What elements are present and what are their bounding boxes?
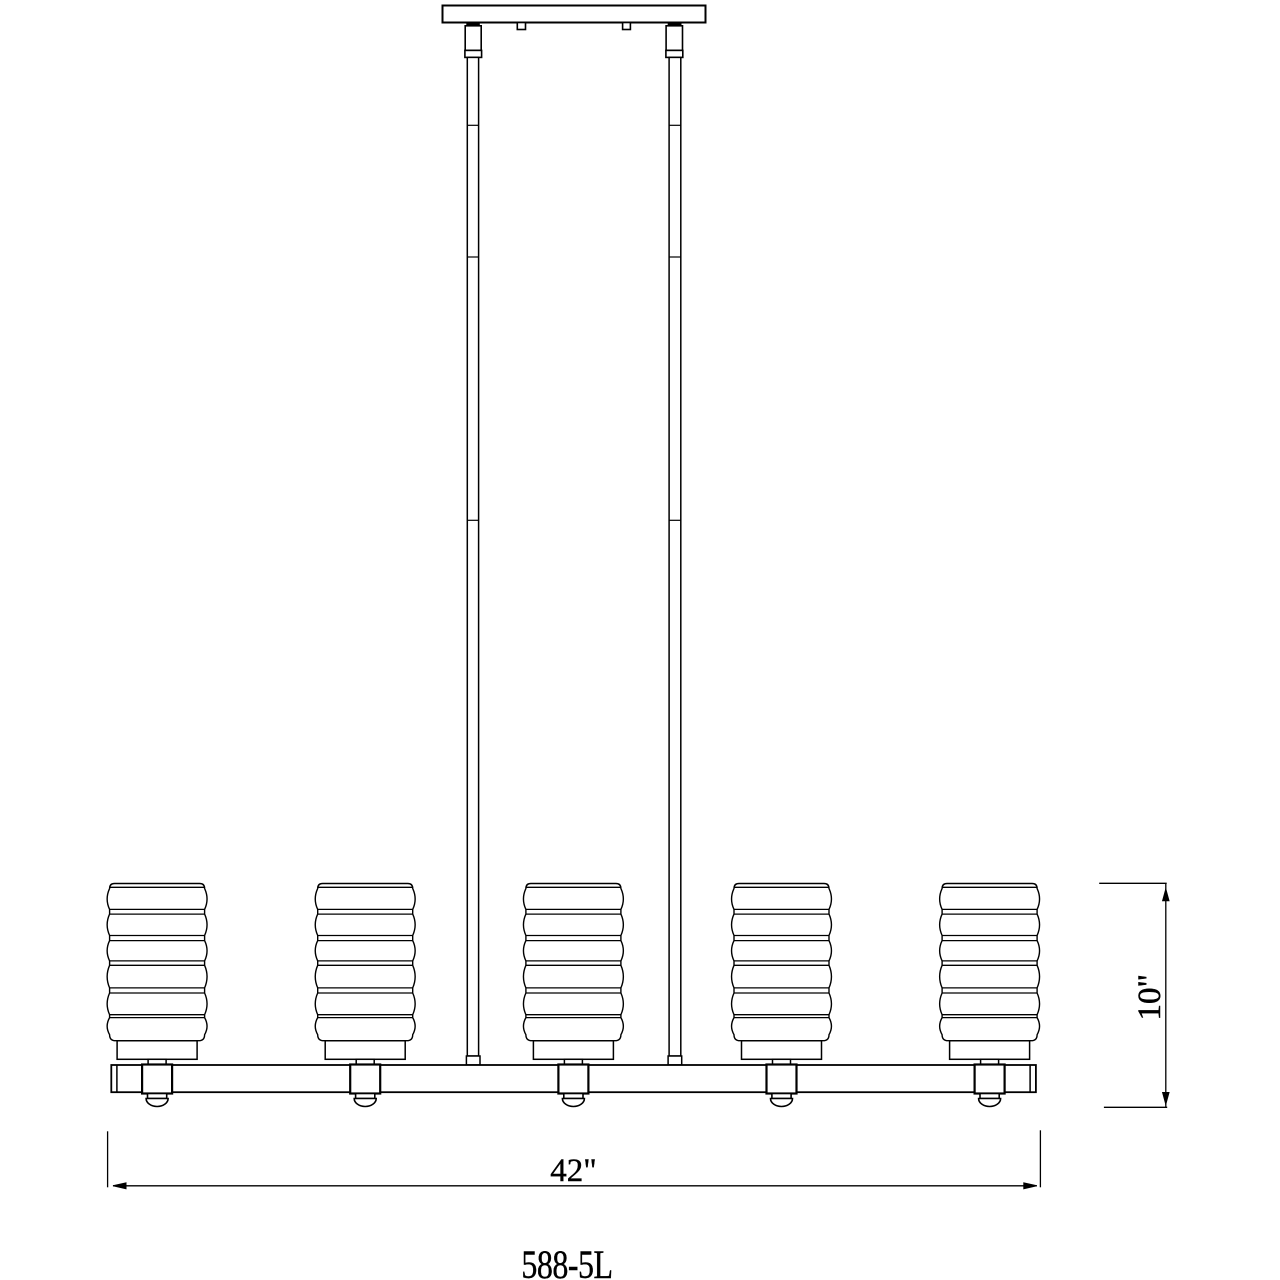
svg-text:588-5L: 588-5L	[521, 1243, 612, 1280]
svg-text:42": 42"	[550, 1153, 596, 1189]
svg-text:10": 10"	[1132, 974, 1168, 1020]
